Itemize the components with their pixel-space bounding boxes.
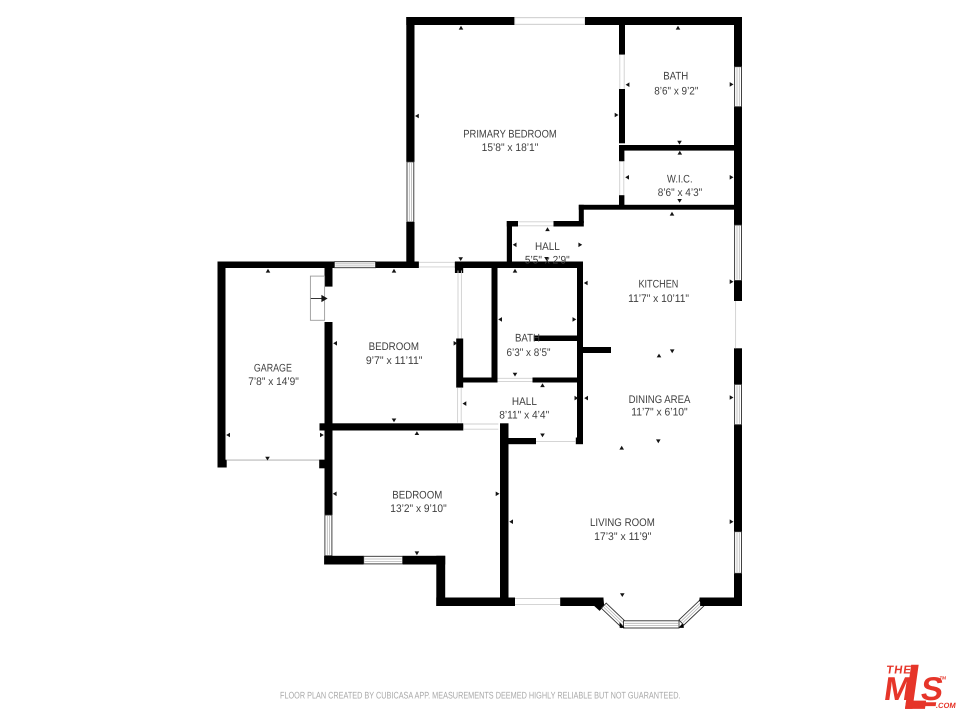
svg-text:GARAGE: GARAGE [254, 362, 292, 374]
svg-text:7’8" x 14’9": 7’8" x 14’9" [248, 376, 299, 388]
svg-text:KITCHEN: KITCHEN [638, 279, 678, 291]
svg-text:BATH: BATH [663, 71, 688, 83]
svg-text:TM: TM [939, 675, 947, 680]
svg-text:11’7" x 6’10": 11’7" x 6’10" [631, 407, 687, 419]
svg-text:HALL: HALL [535, 241, 560, 253]
svg-text:13’2" x 9’10": 13’2" x 9’10" [390, 503, 446, 515]
svg-text:LIVING ROOM: LIVING ROOM [590, 517, 655, 529]
svg-text:BEDROOM: BEDROOM [392, 489, 442, 501]
svg-text:.COM: .COM [935, 701, 956, 710]
svg-text:15’8" x 18’1": 15’8" x 18’1" [482, 142, 539, 154]
svg-text:PRIMARY BEDROOM: PRIMARY BEDROOM [463, 129, 556, 141]
svg-text:5’5" x 2’9": 5’5" x 2’9" [525, 254, 570, 266]
svg-text:FLOOR PLAN CREATED BY CUBICASA: FLOOR PLAN CREATED BY CUBICASA APP. MEAS… [280, 691, 681, 702]
svg-text:DINING AREA: DINING AREA [629, 394, 691, 406]
svg-text:11’7" x 10’11": 11’7" x 10’11" [628, 293, 689, 305]
svg-text:HALL: HALL [512, 396, 537, 408]
svg-text:W.I.C.: W.I.C. [667, 174, 693, 186]
svg-text:8’6" x 4’3": 8’6" x 4’3" [658, 187, 703, 199]
svg-text:17’3" x 11’9": 17’3" x 11’9" [594, 531, 651, 543]
svg-text:8’11" x 4’4": 8’11" x 4’4" [499, 409, 549, 421]
svg-text:BEDROOM: BEDROOM [369, 341, 419, 353]
svg-text:9’7" x 11’11": 9’7" x 11’11" [366, 355, 423, 367]
svg-text:BATH: BATH [515, 333, 540, 345]
svg-text:8’6" x 9’2": 8’6" x 9’2" [654, 85, 698, 97]
svg-text:6’3" x 8’5": 6’3" x 8’5" [507, 347, 551, 359]
